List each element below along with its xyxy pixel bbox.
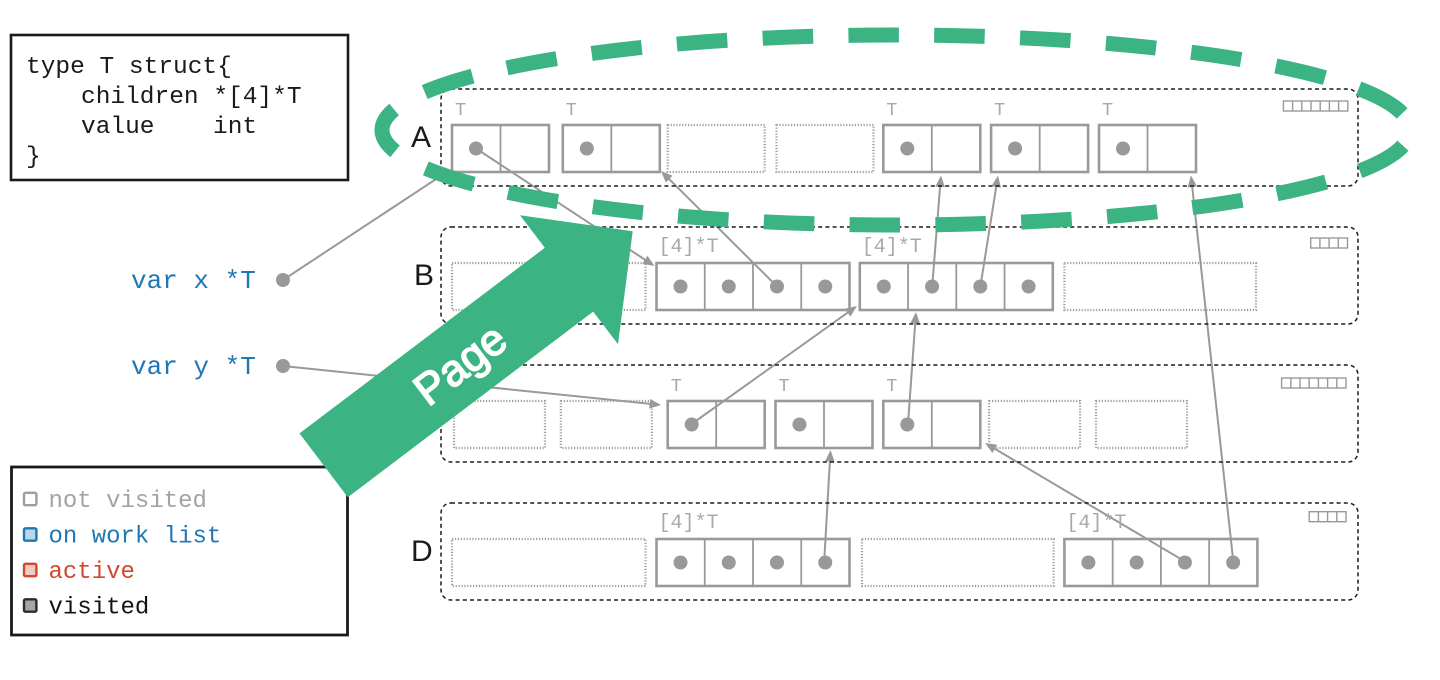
- svg-text:T: T: [671, 376, 682, 397]
- svg-text:[4]*T: [4]*T: [659, 512, 719, 535]
- svg-text:[4]*T: [4]*T: [862, 236, 922, 259]
- svg-text:value: value: [81, 114, 155, 141]
- svg-text:T: T: [886, 100, 897, 121]
- svg-text:[4]*T: [4]*T: [659, 236, 719, 259]
- svg-text:int: int: [213, 114, 257, 141]
- svg-text:var x *T: var x *T: [131, 266, 256, 296]
- svg-text:active: active: [49, 559, 135, 586]
- svg-text:not visited: not visited: [49, 488, 207, 515]
- svg-text:}: }: [26, 144, 41, 171]
- svg-text:on work list: on work list: [49, 524, 222, 551]
- svg-text:T: T: [994, 100, 1005, 121]
- svg-text:children *[4]*T: children *[4]*T: [81, 84, 302, 111]
- svg-text:T: T: [886, 376, 897, 397]
- svg-text:D: D: [411, 535, 433, 568]
- svg-text:var y *T: var y *T: [131, 352, 256, 382]
- svg-text:A: A: [411, 121, 431, 154]
- svg-text:B: B: [414, 259, 434, 292]
- svg-text:visited: visited: [49, 595, 150, 622]
- svg-text:T: T: [779, 376, 790, 397]
- svg-text:T: T: [566, 100, 577, 121]
- svg-text:T: T: [1102, 100, 1113, 121]
- svg-text:type T struct{: type T struct{: [26, 54, 232, 81]
- svg-text:[4]*T: [4]*T: [1066, 512, 1126, 535]
- svg-text:T: T: [455, 100, 466, 121]
